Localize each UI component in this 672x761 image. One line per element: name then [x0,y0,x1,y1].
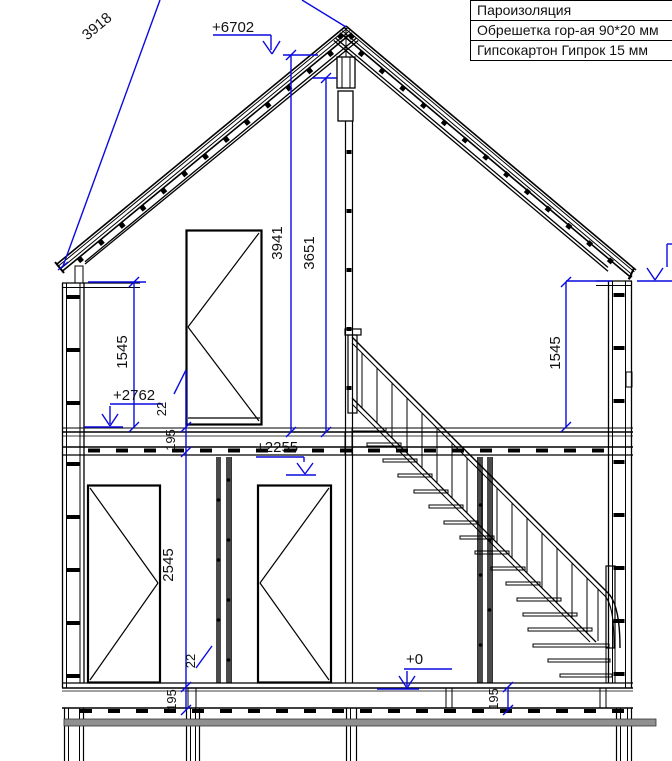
ground-floor-band [62,683,633,711]
legend-row-gypsum-board: Гипсокартон Гипрок 15 мм [471,41,672,61]
legend-row-battens: Обрешетка гор-ая 90*20 мм [471,21,672,41]
dim-ceiling-to-floor2: 3651 [301,236,318,269]
dim-ridge-to-floor2: 3941 [269,226,286,259]
right-wall [596,281,632,688]
legend-row-vapor-barrier: Пароизоляция [471,1,672,21]
partition-wall-studs [217,457,232,683]
door-first-floor-right [258,486,331,683]
stair-bearing-wall [346,121,353,683]
house-section-drawing: 3918 +6702 3941 3651 1545 +2762 22 195 +… [0,0,672,761]
stairwell-wall-studs [478,457,493,683]
dim-ground-level: +0 [406,651,423,668]
foundation [64,708,656,761]
dim-ridge-level: +6702 [212,19,254,36]
dimension-lines [58,0,672,715]
dim-floor2-sheathing: 22 [154,402,169,416]
door-first-floor-left [88,486,160,683]
interfloor-band [62,428,633,455]
roof-layers-legend: Пароизоляция Обрешетка гор-ая 90*20 мм Г… [470,0,672,61]
dim-roof-slope: 3918 [79,9,115,43]
window-second-floor [187,231,262,425]
dim-floor1-joist-left: 195 [164,689,179,711]
roof-left-slope [55,26,358,273]
dim-floor1-sheathing: 22 [183,654,198,668]
dim-knee-wall-right: 1545 [547,336,564,369]
dim-floor1-wall-height: 2545 [160,548,177,581]
dim-door-head-level: +2255 [256,439,298,456]
section-linework: 3918 +6702 3941 3651 1545 +2762 22 195 +… [0,0,672,761]
dim-floor1-joist-right: 195 [486,688,501,710]
roof-right-slope [334,26,636,279]
dim-knee-wall-left: 1545 [114,335,131,368]
foundation-beam [64,719,656,726]
dim-floor2-joist: 195 [163,429,178,451]
dim-floor2-level: +2762 [113,387,155,404]
